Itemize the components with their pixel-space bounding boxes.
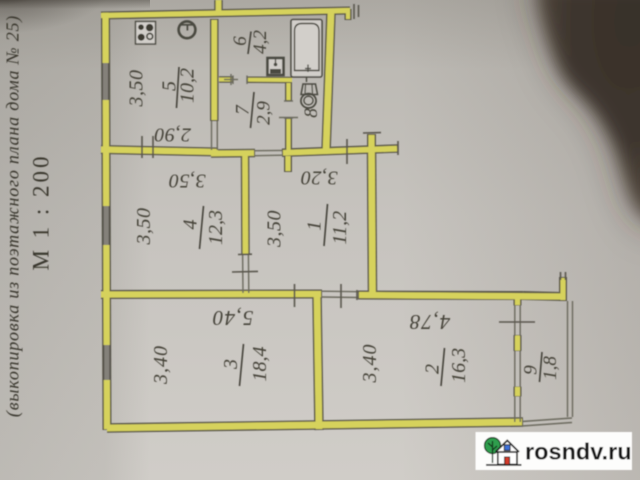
svg-text:6: 6: [230, 36, 251, 46]
svg-text:3,20: 3,20: [301, 167, 339, 189]
svg-text:М 1 : 200: М 1 : 200: [29, 153, 54, 270]
svg-text:4,2: 4,2: [250, 30, 271, 54]
svg-text:4,78: 4,78: [409, 310, 451, 334]
svg-text:5,40: 5,40: [212, 306, 254, 330]
svg-text:1: 1: [304, 221, 326, 231]
svg-text:3,40: 3,40: [359, 344, 381, 384]
svg-text:7: 7: [233, 104, 254, 115]
svg-text:9: 9: [521, 365, 542, 375]
svg-text:2,9: 2,9: [254, 101, 275, 125]
svg-text:2,90: 2,90: [154, 124, 191, 146]
svg-text:3,50: 3,50: [133, 208, 155, 246]
svg-text:10,2: 10,2: [177, 68, 199, 103]
svg-text:3: 3: [220, 359, 242, 370]
svg-text:3,50: 3,50: [126, 70, 148, 108]
svg-text:11,2: 11,2: [329, 211, 351, 245]
svg-text:8: 8: [301, 108, 322, 118]
svg-text:1,8: 1,8: [540, 356, 561, 380]
svg-text:18,4: 18,4: [249, 347, 271, 382]
svg-text:3,50: 3,50: [169, 170, 207, 192]
svg-text:2: 2: [422, 364, 444, 374]
svg-text:3,50: 3,50: [264, 210, 286, 248]
svg-text:rosndv.ru: rosndv.ru: [525, 439, 632, 465]
svg-text:16,3: 16,3: [448, 348, 470, 383]
svg-text:4: 4: [180, 220, 202, 230]
svg-text:3,40: 3,40: [150, 345, 172, 385]
svg-text:12,3: 12,3: [205, 210, 227, 245]
svg-text:(выкопировка из поэтажного пла: (выкопировка из поэтажного плана дома № …: [3, 15, 24, 417]
